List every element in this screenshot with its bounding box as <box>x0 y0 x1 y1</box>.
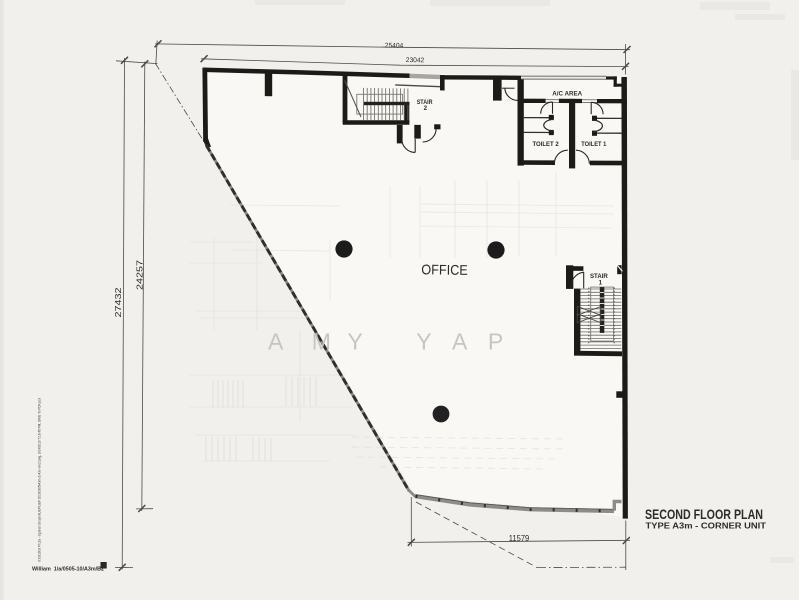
svg-text:TYPE A3m - CORNER UNIT: TYPE A3m - CORNER UNIT <box>646 521 767 530</box>
svg-text:A/C AREA: A/C AREA <box>552 91 582 98</box>
svg-text:TOILET 2: TOILET 2 <box>533 141 559 148</box>
svg-text:A: A <box>452 329 468 355</box>
svg-text:TOILET 1: TOILET 1 <box>581 141 606 148</box>
svg-text:P: P <box>488 329 503 355</box>
svg-text:William 1/a/0505-10/A3m/B2: William 1/a/0505-10/A3m/B2 <box>32 567 104 573</box>
svg-text:Y: Y <box>348 329 363 355</box>
svg-text:24257: 24257 <box>135 259 144 290</box>
svg-text:23042: 23042 <box>406 57 425 64</box>
svg-text:SECOND FLOOR PLAN: SECOND FLOOR PLAN <box>645 507 763 522</box>
svg-text:11579: 11579 <box>509 533 530 543</box>
svg-text:27432: 27432 <box>114 287 123 318</box>
svg-text:1: 1 <box>599 279 603 286</box>
svg-text:25404: 25404 <box>385 42 404 49</box>
svg-text:2: 2 <box>424 105 428 112</box>
svg-text:X:\031003 Ph.2a - Sg Besi Shop: X:\031003 Ph.2a - Sg Besi Shoplot\U&P\U&… <box>38 398 42 562</box>
svg-text:A: A <box>268 329 284 355</box>
svg-text:Y: Y <box>416 329 431 355</box>
svg-text:OFFICE: OFFICE <box>421 261 468 278</box>
svg-text:M: M <box>312 329 331 355</box>
